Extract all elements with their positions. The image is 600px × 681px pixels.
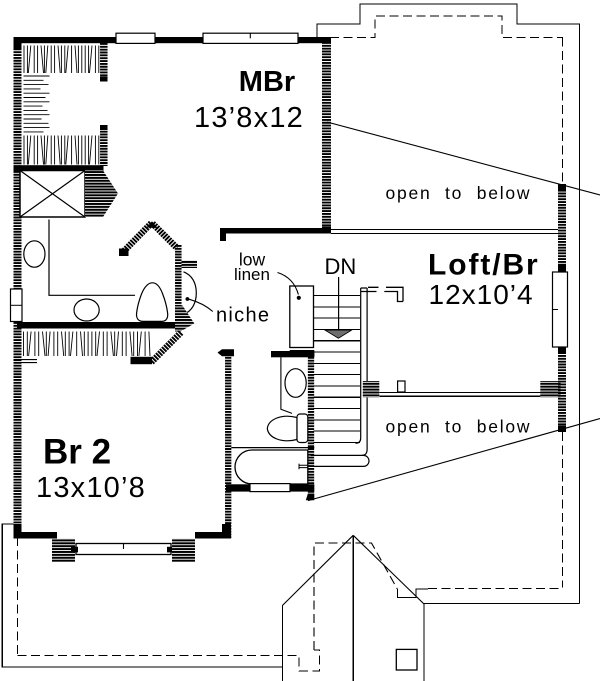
svg-text:open to below: open to below: [386, 183, 532, 203]
svg-text:DN: DN: [325, 254, 357, 279]
svg-text:13x10’8: 13x10’8: [36, 472, 146, 504]
svg-text:open to below: open to below: [386, 417, 532, 437]
svg-text:niche: niche: [216, 305, 270, 327]
svg-text:linen: linen: [234, 265, 270, 284]
svg-text:MBr: MBr: [239, 66, 295, 98]
svg-text:12x10’4: 12x10’4: [429, 279, 534, 310]
svg-text:13’8x12: 13’8x12: [194, 102, 304, 134]
svg-text:Loft/Br: Loft/Br: [428, 249, 540, 282]
svg-text:Br 2: Br 2: [43, 433, 111, 472]
